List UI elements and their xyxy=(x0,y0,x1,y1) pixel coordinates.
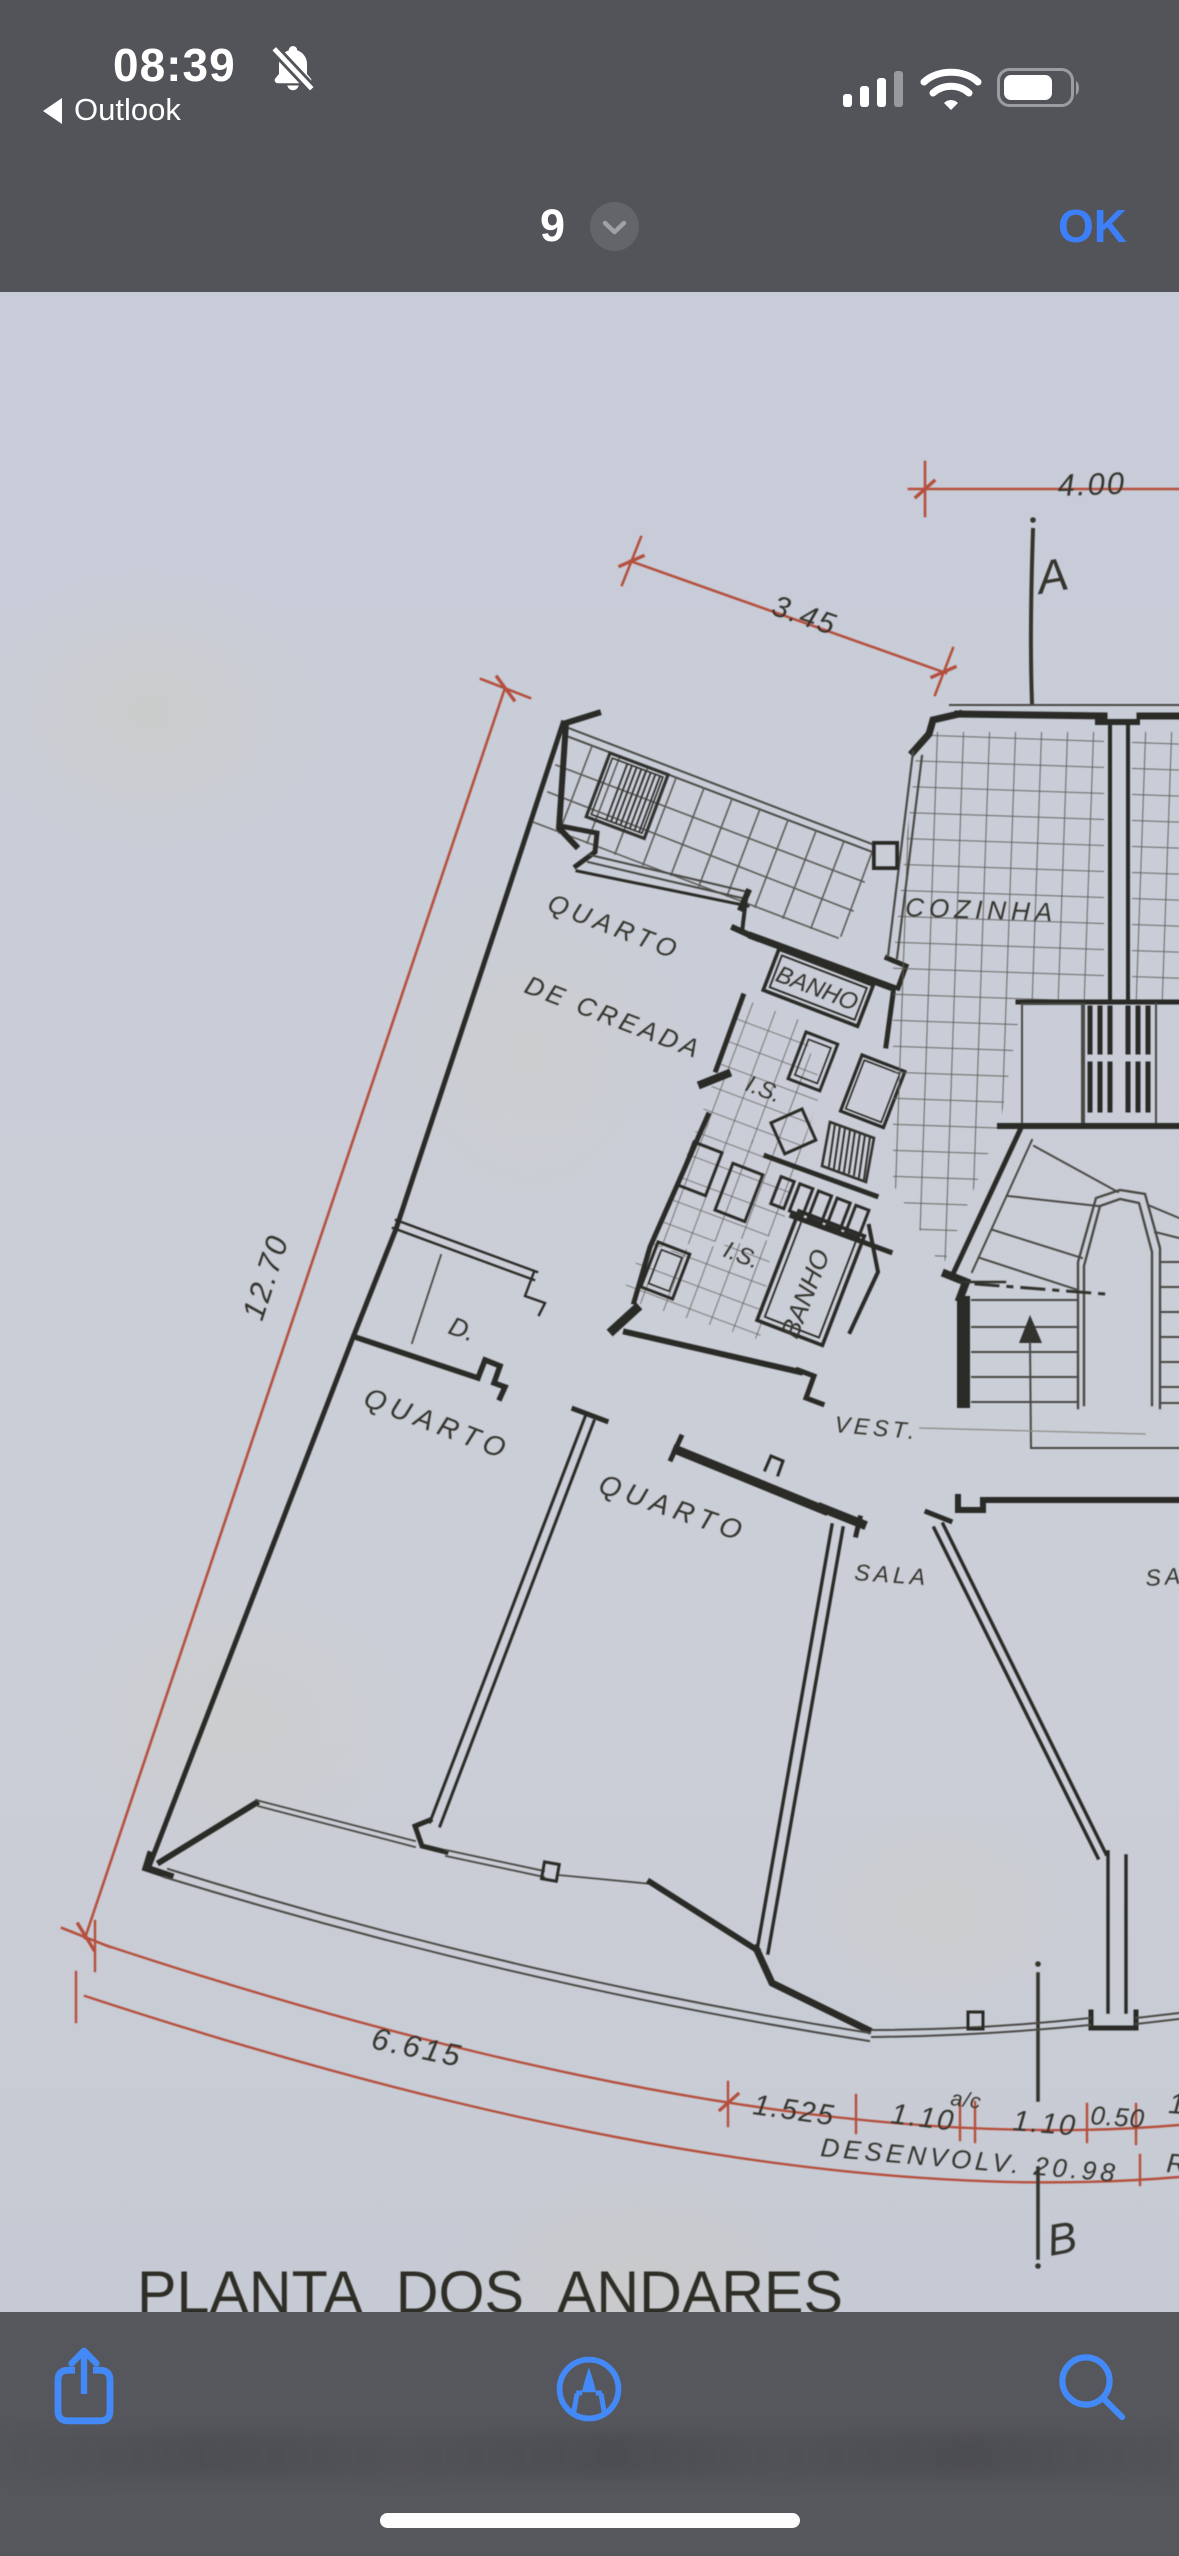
svg-text:3.45: 3.45 xyxy=(768,589,842,642)
svg-text:1.10: 1.10 xyxy=(889,2098,957,2138)
svg-text:SALA: SALA xyxy=(854,1559,930,1590)
svg-text:SA: SA xyxy=(1145,1562,1179,1591)
svg-text:a/c: a/c xyxy=(949,2087,983,2114)
svg-text:DE CREADA: DE CREADA xyxy=(521,970,707,1065)
svg-text:A: A xyxy=(1030,547,1072,604)
svg-text:QUARTO: QUARTO xyxy=(595,1468,751,1548)
svg-text:QUARTO: QUARTO xyxy=(544,888,686,966)
svg-text:1.525: 1.525 xyxy=(751,2089,837,2132)
svg-text:R: R xyxy=(1166,2148,1179,2179)
svg-text:6.615: 6.615 xyxy=(369,2021,467,2074)
svg-text:QUARTO: QUARTO xyxy=(360,1382,516,1466)
svg-text:D.: D. xyxy=(445,1310,480,1347)
svg-text:4.00: 4.00 xyxy=(1057,466,1127,503)
svg-text:1: 1 xyxy=(1168,2088,1179,2121)
svg-text:BANHO: BANHO xyxy=(775,1245,836,1342)
svg-text:B: B xyxy=(1043,2212,1080,2265)
svg-text:COZINHA: COZINHA xyxy=(905,892,1058,927)
svg-text:1.10: 1.10 xyxy=(1011,2105,1078,2142)
svg-text:0.50: 0.50 xyxy=(1090,2100,1147,2134)
svg-text:12.70: 12.70 xyxy=(235,1230,295,1324)
svg-text:VEST.: VEST. xyxy=(834,1411,920,1444)
